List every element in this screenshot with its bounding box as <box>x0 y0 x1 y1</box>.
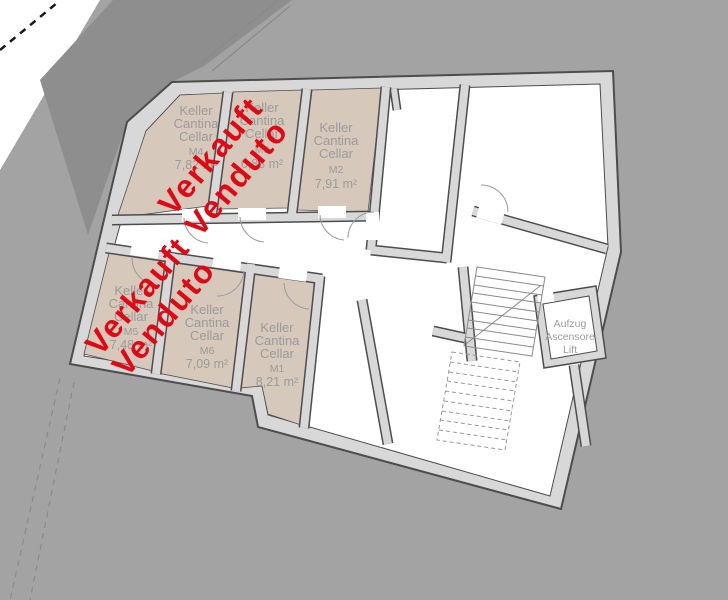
room-m1-label: Keller Cantina Cellar M1 8,21 m² <box>255 320 301 389</box>
svg-text:Lift: Lift <box>563 344 577 356</box>
svg-text:Cellar: Cellar <box>260 346 295 361</box>
svg-text:Cellar: Cellar <box>190 328 225 343</box>
svg-text:M2: M2 <box>329 164 344 176</box>
room-m2-label: Keller Cantina Cellar M2 7,91 m² <box>314 120 360 191</box>
elevator-door-opening <box>537 291 554 304</box>
svg-text:7,91 m²: 7,91 m² <box>315 177 357 191</box>
svg-text:M1: M1 <box>270 363 285 375</box>
svg-text:M6: M6 <box>200 345 215 357</box>
svg-text:7,09 m²: 7,09 m² <box>186 357 228 371</box>
room-m6-label: Keller Cantina Cellar M6 7,09 m² <box>185 302 231 371</box>
svg-text:Aufzug: Aufzug <box>554 318 587 330</box>
svg-text:Ascensore: Ascensore <box>545 331 595 343</box>
svg-text:Cellar: Cellar <box>319 146 354 161</box>
floor-plan-page: Keller Cantina Cellar M4 7,82 m² Keller … <box>0 0 728 600</box>
wall-stub-core <box>394 89 397 110</box>
svg-text:8,21 m²: 8,21 m² <box>256 375 298 389</box>
floor-plan-drawing: Keller Cantina Cellar M4 7,82 m² Keller … <box>0 0 728 600</box>
